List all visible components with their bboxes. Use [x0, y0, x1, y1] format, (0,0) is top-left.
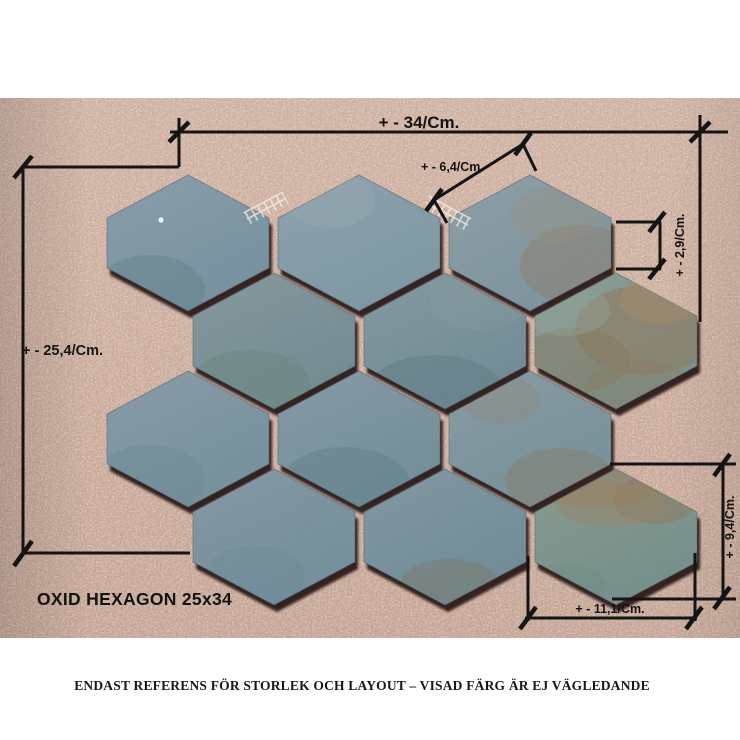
tile-chip-speck [158, 217, 163, 222]
dimension-label-hex-height: + - 9,4/Cm. [723, 496, 737, 559]
dimension-label-hex-width: + - 11,1/Cm. [575, 602, 644, 616]
dimension-label-hex-side: + - 2,9/Cm. [673, 214, 687, 277]
scene-canvas: + - 34/Cm. + - 6,4/Cm + - 25,4/Cm. + - 2… [0, 0, 740, 740]
dimension-label-total-width: + - 34/Cm. [379, 113, 460, 132]
product-reference-image: + - 34/Cm. + - 6,4/Cm + - 25,4/Cm. + - 2… [0, 0, 740, 740]
dimension-label-hex-edge: + - 6,4/Cm [421, 160, 480, 174]
disclaimer-caption: ENDAST REFERENS FÖR STORLEK OCH LAYOUT –… [74, 678, 650, 693]
product-label: OXID HEXAGON 25x34 [37, 589, 232, 609]
dimension-label-total-height: + - 25,4/Cm. [22, 343, 103, 359]
